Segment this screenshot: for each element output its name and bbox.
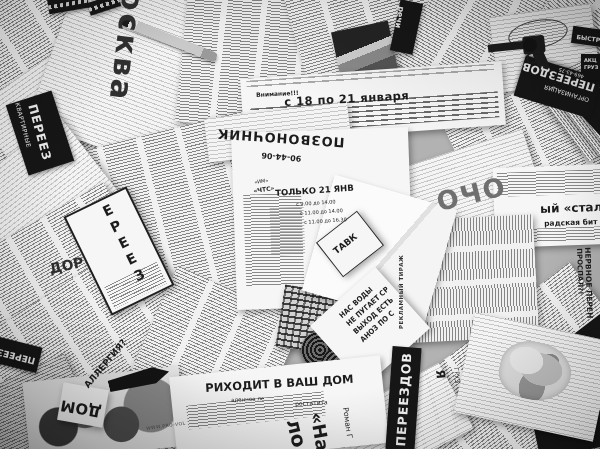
fragment-stal-line2: радская бит (544, 218, 598, 227)
fragment-lo: ло (284, 417, 310, 449)
small-print-lines (497, 169, 600, 197)
fragment-gruz: ГРУЗ (453, 367, 461, 384)
fragment-reklamny: РЕКЛАМНЫЙ ТИРАЖ (399, 255, 405, 329)
fragment-akc-line: АКЦ (584, 58, 597, 63)
fragment-nervnoe: НЕРВНОЕ ПЕРЕН (584, 247, 594, 319)
fragment-ya: Я (434, 369, 447, 379)
fragment-akc-line: ГРУЗ (584, 65, 598, 70)
portrait-sketch (494, 335, 576, 407)
newspaper-collage-photo: осква КВАРТИРНЫЕ ПЕРЕЕЗ речи Внимание!!!… (0, 0, 600, 449)
fragment-stal-line1: ый «стал (540, 201, 600, 215)
